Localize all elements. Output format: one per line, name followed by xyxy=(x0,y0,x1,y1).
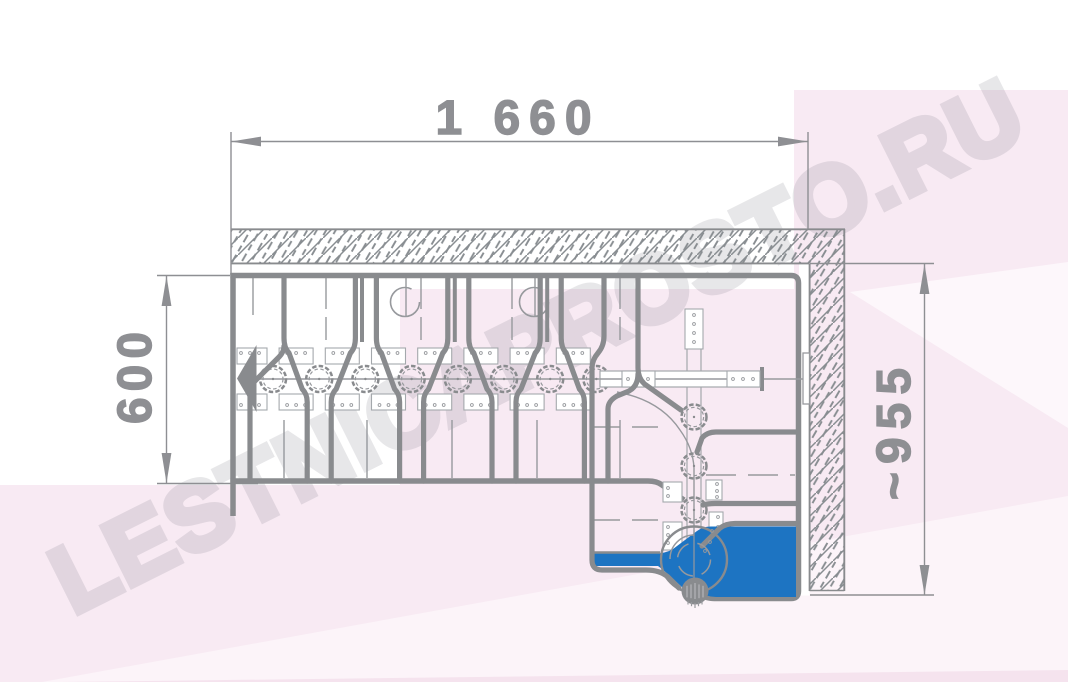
svg-text:~955: ~955 xyxy=(868,360,921,500)
svg-text:600: 600 xyxy=(109,326,162,424)
svg-text:1 660: 1 660 xyxy=(435,92,600,145)
